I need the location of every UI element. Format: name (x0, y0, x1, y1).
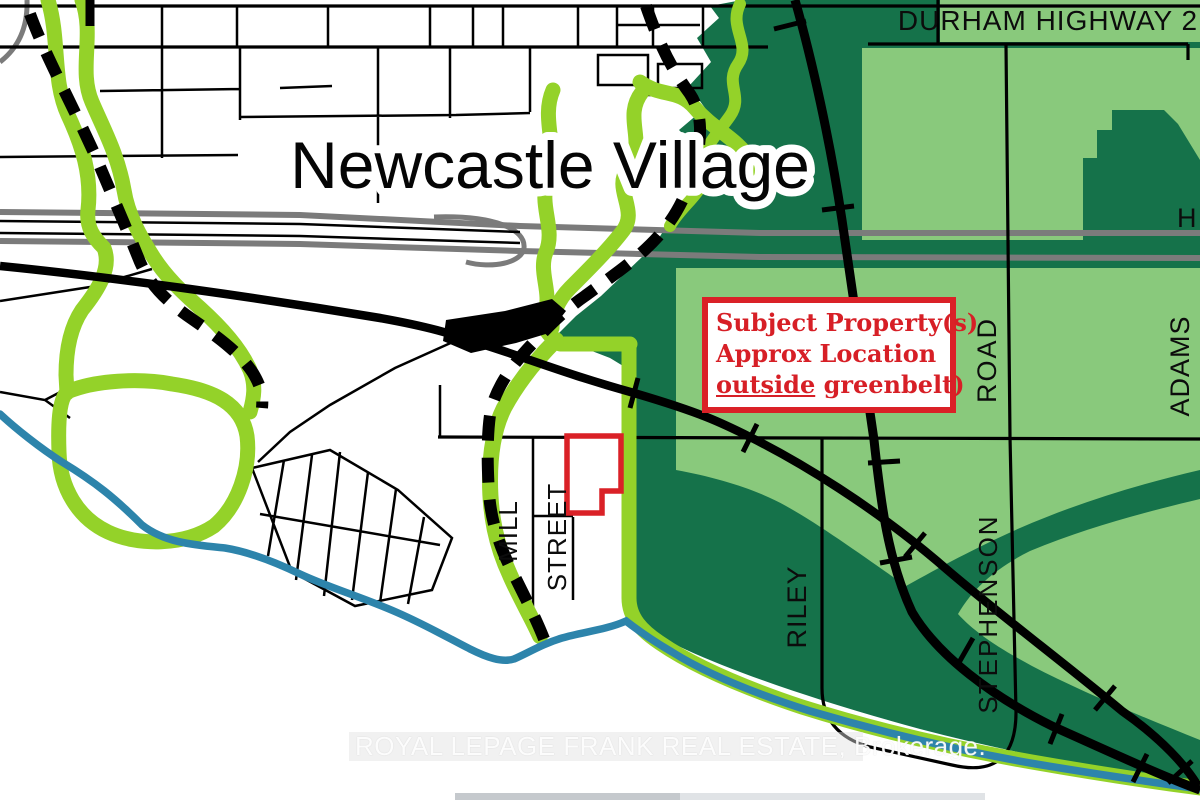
annotation-line-2: Approx Location (716, 338, 942, 369)
road-label-adams: ADAMS (1165, 315, 1195, 416)
annotation-underlined-word: outside (716, 370, 815, 399)
road-label-mill: MILL (493, 500, 523, 562)
highway-label: DURHAM HIGHWAY 2 (898, 5, 1198, 36)
subject-property-annotation: Subject Property(s) Approx Location outs… (702, 297, 956, 413)
horizontal-scrollbar[interactable] (455, 793, 985, 800)
map-canvas: DURHAM HIGHWAY 2 H MILL STREET RILEY ROA… (0, 0, 1200, 800)
annotation-line-1: Subject Property(s) (716, 307, 942, 338)
map-title: Newcastle Village (290, 128, 810, 202)
annotation-line-3-rest: greenbelt) (815, 370, 964, 399)
road-label-stephenson: STEPHENSON (973, 514, 1003, 713)
brokerage-watermark-text: ROYAL LEPAGE FRANK REAL ESTATE, Brokerag… (349, 731, 986, 762)
partial-road-label: H (1177, 203, 1197, 233)
annotation-line-3: outside greenbelt) (716, 369, 942, 400)
road-label-street: STREET (542, 483, 572, 592)
map-stage: DURHAM HIGHWAY 2 H MILL STREET RILEY ROA… (0, 0, 1200, 800)
road-label-riley: RILEY (782, 565, 812, 648)
horizontal-scrollbar-thumb[interactable] (455, 793, 680, 800)
brokerage-watermark: ROYAL LEPAGE FRANK REAL ESTATE, Brokerag… (349, 732, 863, 761)
